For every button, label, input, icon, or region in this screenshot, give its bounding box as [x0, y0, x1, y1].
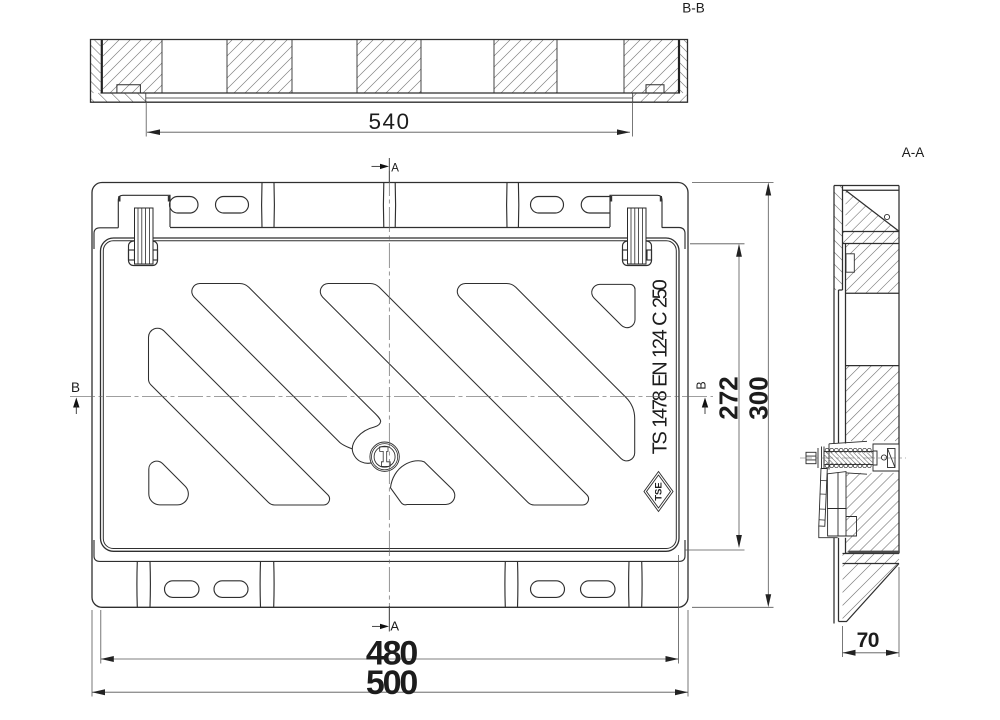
svg-text:TSE: TSE — [654, 482, 665, 500]
svg-text:300: 300 — [744, 376, 774, 419]
svg-text:A: A — [390, 619, 399, 634]
svg-text:B-B: B-B — [682, 1, 705, 16]
svg-text:TS 1478 EN 124 C 250: TS 1478 EN 124 C 250 — [650, 279, 672, 454]
svg-text:A: A — [391, 163, 399, 175]
svg-text:540: 540 — [368, 109, 410, 134]
svg-text:B: B — [695, 381, 709, 389]
svg-text:500: 500 — [366, 664, 417, 702]
svg-text:A-A: A-A — [902, 145, 925, 160]
svg-text:70: 70 — [857, 629, 879, 652]
svg-text:B: B — [71, 380, 80, 395]
svg-text:272: 272 — [714, 376, 744, 419]
